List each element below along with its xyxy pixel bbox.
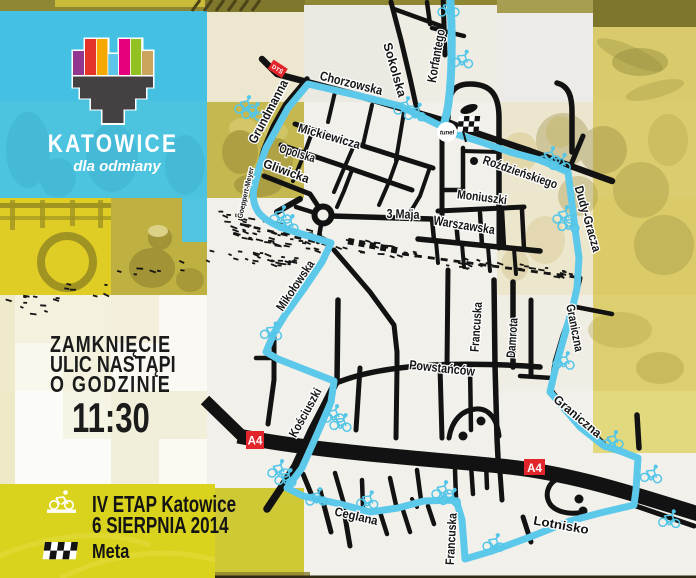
- svg-text:tunel: tunel: [440, 131, 455, 137]
- svg-text:Warszawska: Warszawska: [432, 213, 496, 238]
- svg-text:3 Maja: 3 Maja: [386, 206, 420, 222]
- svg-text:Francuska: Francuska: [468, 301, 486, 353]
- svg-text:A4: A4: [248, 436, 263, 448]
- svg-text:A4: A4: [527, 463, 542, 475]
- svg-text:Francuska: Francuska: [443, 512, 460, 566]
- svg-text:Damrota: Damrota: [504, 317, 521, 359]
